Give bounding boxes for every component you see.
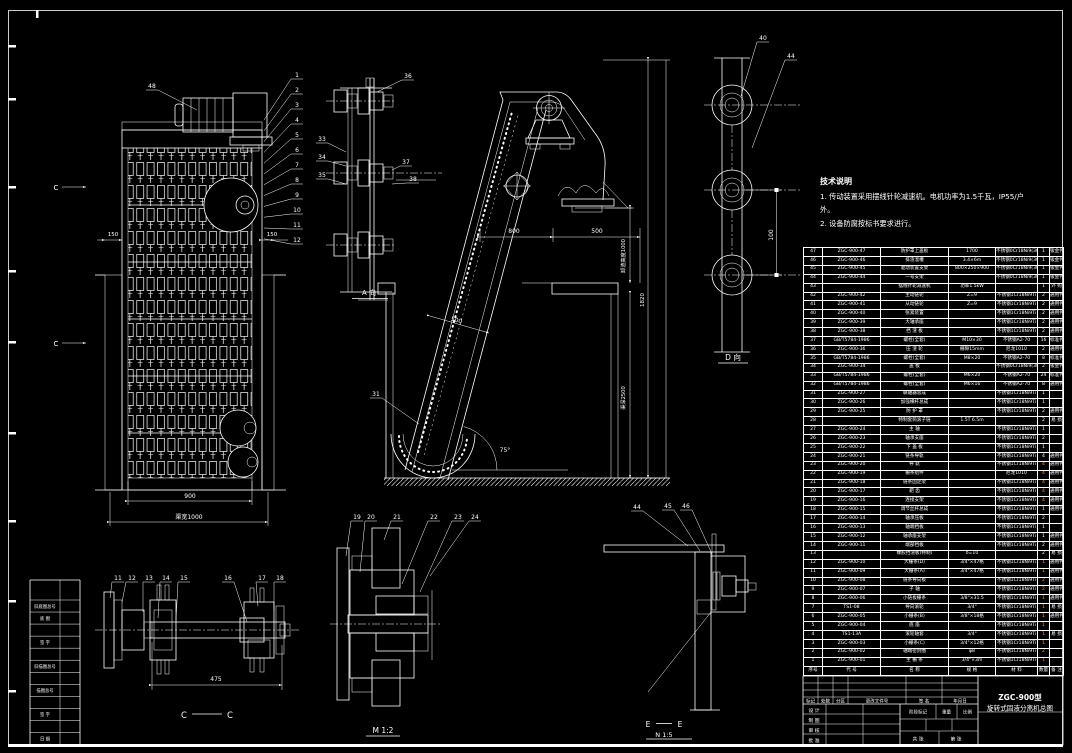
border-tick <box>8 186 16 189</box>
table-row: 44ZGC-900-44一号支架不锈钢0Cr18Ni9(304)1钣金件 <box>804 274 1064 283</box>
bom-cell: 不锈钢1Cr18Ni9Ti <box>996 479 1038 488</box>
table-row: 42ZGC-900-42主动链轮Z=9不锈钢1Cr18Ni9Ti2通用件 <box>804 292 1064 301</box>
balloon-leader <box>264 199 291 206</box>
bom-cell: 2 <box>804 648 823 657</box>
bom-cell: 大栅条(A) <box>881 568 949 577</box>
bom-cell: ZGC-900-41 <box>823 301 881 310</box>
bom-cell: 特制套筒滚子链 <box>881 417 949 426</box>
bom-cell: 联轴器总成 <box>881 390 949 399</box>
bom-cell: 滚轮轴套 <box>881 630 949 639</box>
bom-cell: 栅条组件 <box>881 470 949 479</box>
bom-cell: 8 <box>804 595 823 604</box>
left-strip-label: 旧描图总号 <box>34 663 55 670</box>
bom-cell: 41 <box>804 301 823 310</box>
bom-cell <box>949 524 996 533</box>
bom-cell: 螺栓(全套) <box>881 354 949 363</box>
table-row: 36ZGC-900-36压 渣 轮栅隙15mm尼龙10102通用件 <box>804 345 1064 354</box>
bom-cell: 17 <box>804 515 823 524</box>
bom-cell: 35 <box>804 354 823 363</box>
bom-cell: 子 轴 <box>881 586 949 595</box>
bom-cell: 标准件 <box>1050 337 1064 346</box>
balloon-number: 11 <box>114 575 122 582</box>
bom-cell: M6×20 <box>949 372 996 381</box>
balloon-number: 36 <box>404 73 412 80</box>
d-view: 100 D 向 <box>704 58 800 363</box>
bom-cell: 轴承座支架 <box>881 533 949 542</box>
bom-cell: δ=10 <box>949 550 996 559</box>
balloon-number: 20 <box>367 514 375 521</box>
table-row: 29ZGC-900-25防 护 罩不锈钢1Cr18Ni9Ti2通用件 <box>804 408 1064 417</box>
bom-cell: 钣金件 <box>1050 256 1064 265</box>
balloon-number: 10 <box>293 207 301 214</box>
section-marker-c-lower: C <box>54 340 59 348</box>
bom-cell: 不锈钢1Cr18Ni9Ti <box>996 586 1038 595</box>
left-strip-label: 描图总号 <box>36 687 53 694</box>
bom-cell: 19 <box>804 497 823 506</box>
roller-row-bottom <box>326 232 396 258</box>
bom-cell: 不锈钢1Cr18Ni9Ti <box>996 613 1038 622</box>
bom-cell: 不锈钢1Cr18Ni9Ti <box>996 577 1038 586</box>
bom-cell: 通用件 <box>1050 408 1064 417</box>
bom-cell <box>1050 390 1064 399</box>
bom-cell: 不锈钢1Cr18Ni9Ti <box>996 559 1038 568</box>
bom-cell: 1 <box>1038 639 1050 648</box>
bom-cell: 1 <box>1038 274 1050 283</box>
tb-sheet: 第 张 <box>950 736 961 743</box>
bom-cell: GB/T5784-1986 <box>823 381 881 390</box>
bom-cell: 主 栅 条 <box>881 657 949 666</box>
tech-notes: 技术说明 1. 传动装置采用摆线针轮减速机。电机功率为1.5千瓦，IP55/户 … <box>820 176 1024 228</box>
balloon-number: 40 <box>759 35 767 42</box>
bom-cell: 轴承压板 <box>881 515 949 524</box>
main-side-view: 800 500 500 75° 卸渣高度1000 渠深2500 1820 <box>378 60 670 486</box>
table-row: 46ZGC-900-46排渣溜槽3.4×6m不锈钢0Cr18Ni9(304)1钣… <box>804 256 1064 265</box>
bom-cell: ZGC-900-13 <box>823 524 881 533</box>
bom-header-cell: 数量 <box>1038 666 1050 675</box>
balloon-number: 9 <box>295 192 299 199</box>
bom-cell: ZGC-900-01 <box>823 657 881 666</box>
drawing-title: 旋转式固液分离机总图 <box>987 704 1053 713</box>
bom-cell: 底 座 <box>881 622 949 631</box>
bom-cell: 40 <box>804 310 823 319</box>
bom-cell: 排渣溜槽 <box>881 256 949 265</box>
bom-cell: ZGC-900-24 <box>823 426 881 435</box>
bom-cell: 通用件 <box>1050 301 1064 310</box>
tb-date: 年月日 <box>953 698 967 705</box>
bom-cell: 2 <box>1038 319 1050 328</box>
bom-cell: ZGC-900-25 <box>823 408 881 417</box>
dim-500-diagonal: 500 <box>450 316 463 326</box>
balloon-leader <box>752 60 785 148</box>
bom-cell: 2 <box>1038 345 1050 354</box>
bom-cell: 1 <box>1038 604 1050 613</box>
bom-header-cell: 规 格 <box>949 666 996 675</box>
bom-cell: 8 <box>1038 381 1050 390</box>
table-row: 45ZGC-900-45驱动装置支架800×250×900不锈钢0Cr18Ni9… <box>804 265 1064 274</box>
bom-cell: 1 <box>1038 443 1050 452</box>
bom-cell: ZGC-900-36 <box>823 345 881 354</box>
bom-cell <box>949 515 996 524</box>
bom-cell: 不锈钢0Cr18Ni9(304) <box>996 265 1038 274</box>
bom-header-cell: 材 料 <box>996 666 1038 675</box>
bom-cell: ZGC-900-06 <box>823 595 881 604</box>
table-row: 30ZGC-900-26加强横杆总成不锈钢1Cr18Ni9Ti1 <box>804 399 1064 408</box>
bom-cell: 4 <box>1038 497 1050 506</box>
bom-cell: 不锈钢1Cr18Ni9Ti <box>996 408 1038 417</box>
table-row: 7TS1-08导向滚轮3/4"不锈钢1Cr18Ni9Ti1易 损 <box>804 604 1064 613</box>
bom-cell: ZGC-900-23 <box>823 435 881 444</box>
table-row: 22ZGC-900-19栅条组件尼龙10104通用件 <box>804 470 1064 479</box>
table-row: 16ZGC-900-13轴端挡板不锈钢1Cr18Ni9Ti1 <box>804 524 1064 533</box>
bom-cell: 下 盖 板 <box>881 443 949 452</box>
bom-cell: 连接支架 <box>881 497 949 506</box>
bom-cell: 不锈钢1Cr18Ni9Ti <box>996 390 1038 399</box>
bom-cell: 从动链轮 <box>881 301 949 310</box>
bom-cell: TS1-08 <box>823 604 881 613</box>
bom-cell: 轴端密封圈 <box>881 648 949 657</box>
label-ee-right: E <box>678 720 683 729</box>
tech-notes-line3: 2. 设备防腐按标书要求进行。 <box>820 219 915 228</box>
border-tick <box>8 270 16 273</box>
table-row: 47ZGC-900-47防护罩上盖板1700不锈钢0Cr18Ni9(304)1钣… <box>804 248 1064 257</box>
bom-cell <box>949 577 996 586</box>
bom-cell: ZGC-900-05 <box>823 613 881 622</box>
bom-cell: 47 <box>804 248 823 257</box>
bom-cell <box>949 426 996 435</box>
bom-cell: 4 <box>1038 461 1050 470</box>
tb-stage: 阶段标记 <box>909 709 927 716</box>
bom-cell: 4 <box>1038 488 1050 497</box>
bom-cell: 主 轴 <box>881 426 949 435</box>
bom-header-cell: 代 号 <box>823 666 881 675</box>
table-row: 20ZGC-900-17耙 齿不锈钢1Cr18Ni9Ti4通用件 <box>804 488 1064 497</box>
bom-cell: 不锈钢1Cr18Ni9Ti <box>996 533 1038 542</box>
balloon-leader <box>264 139 291 163</box>
bom-cell: 不锈钢1Cr18Ni9Ti <box>996 328 1038 337</box>
cad-drawing-sheet: 150 150 900 渠宽1000 C C <box>0 0 1072 753</box>
left-edge-signature-strip: 旧底图总号底 图签 字旧描图总号描图总号签 字日 期 <box>30 580 80 745</box>
table-row: 32GB/T5784-1986螺栓(全套)M6×16不锈钢A2-708通用件 <box>804 381 1064 390</box>
bom-cell: 8 <box>1038 354 1050 363</box>
left-strip-label: 签 字 <box>40 639 50 646</box>
balloon-leader <box>643 511 688 546</box>
bom-cell: 1 <box>1038 399 1050 408</box>
bom-cell: 不锈钢1Cr18Ni9Ti <box>996 657 1038 666</box>
tb-approve: 批 准 <box>808 737 819 744</box>
bom-cell: 3/8"×18格 <box>949 613 996 622</box>
bom-cell: 不锈钢1Cr18Ni9Ti <box>996 443 1038 452</box>
table-row: 37GB/T5784-1986螺栓(全套)M10×30不锈钢A2-7016标准件 <box>804 337 1064 346</box>
bom-cell: 不锈钢1Cr18Ni9Ti <box>996 541 1038 550</box>
d-view-dimension: 100 <box>744 188 782 277</box>
bom-cell: 20 <box>804 488 823 497</box>
border-tick <box>8 432 16 435</box>
bom-cell: 不锈钢A2-70 <box>996 372 1038 381</box>
bom-cell: 小栅条(B) <box>881 613 949 622</box>
parts-table: 47ZGC-900-47防护罩上盖板1700不锈钢0Cr18Ni9(304)1钣… <box>803 247 1063 676</box>
bom-cell: 不锈钢1Cr18Ni9Ti <box>996 497 1038 506</box>
bom-cell: GB/T5784-1986 <box>823 372 881 381</box>
tech-notes-title: 技术说明 <box>820 176 852 186</box>
bom-cell: 易 损 <box>1050 550 1064 559</box>
bom-cell: ZGC-900-38 <box>823 328 881 337</box>
bom-cell: 22 <box>804 470 823 479</box>
balloon-number: 12 <box>293 237 301 244</box>
bom-cell <box>823 550 881 559</box>
table-row: 34ZGC-900-34盖 板不锈钢0Cr18Ni9(304)2钣金件 <box>804 363 1064 372</box>
balloon-leader <box>384 521 391 540</box>
bom-cell: 1 <box>1038 613 1050 622</box>
bom-cell: 通用件 <box>1050 470 1064 479</box>
border-tick <box>8 45 16 48</box>
balloon-number: 44 <box>633 504 641 511</box>
balloon-leader <box>360 521 365 572</box>
bom-cell: 通用件 <box>1050 461 1064 470</box>
bom-cell: 通用件 <box>1050 328 1064 337</box>
bom-cell: 不锈钢A2-70 <box>996 381 1038 390</box>
tech-notes-line2: 外。 <box>820 205 834 214</box>
balloon-number: 3 <box>295 102 299 109</box>
bom-cell <box>1050 622 1064 631</box>
bom-cell: 耙 齿 <box>881 488 949 497</box>
bom-cell: 导向滚轮 <box>881 604 949 613</box>
bom-cell: 1 <box>1038 248 1050 257</box>
bom-cell: 27 <box>804 426 823 435</box>
bom-cell: ZGC-900-14 <box>823 515 881 524</box>
bom-cell: 不锈钢0Cr18Ni9(304) <box>996 248 1038 257</box>
bom-cell: 不锈钢1Cr18Ni9Ti <box>996 426 1038 435</box>
bom-cell: 一号支架 <box>881 274 949 283</box>
bom-cell: 钣金件 <box>1050 248 1064 257</box>
tb-sign: 签 名 <box>919 698 929 705</box>
bom-cell: 2 <box>1038 408 1050 417</box>
bom-cell <box>949 541 996 550</box>
bom-cell: 通用件 <box>1050 533 1064 542</box>
bom-cell <box>949 408 996 417</box>
bom-cell: 不锈钢1Cr18Ni9Ti <box>996 568 1038 577</box>
a-view-chain-detail: A 向 <box>326 78 442 300</box>
table-row: 40ZGC-900-40张紧装置不锈钢1Cr18Ni9Ti2通用件 <box>804 310 1064 319</box>
balloon-number: 17 <box>258 575 266 582</box>
bom-cell: 链条导轨 <box>881 452 949 461</box>
bom-cell: ZGC-900-12 <box>823 533 881 542</box>
bom-cell: 13 <box>804 550 823 559</box>
bom-cell: 2 <box>1038 550 1050 559</box>
balloon-number: 35 <box>318 172 326 179</box>
border-tick <box>8 520 16 523</box>
bom-cell <box>1050 426 1064 435</box>
table-header-row: 序号代 号名 称规 格材 料数量备 注 <box>804 666 1064 675</box>
bom-cell <box>949 443 996 452</box>
bom-cell: 24 <box>804 452 823 461</box>
bom-cell: ZGC-900-03 <box>823 639 881 648</box>
table-row: 17ZGC-900-14轴承压板不锈钢1Cr18Ni9Ti2 <box>804 515 1064 524</box>
bom-cell: ZGC-900-27 <box>823 390 881 399</box>
bom-cell <box>949 399 996 408</box>
bom-cell: 9 <box>804 586 823 595</box>
roller-row-mid <box>326 160 442 186</box>
bom-cell: 不锈钢A2-70 <box>996 337 1038 346</box>
table-row: 23ZGC-900-20导 轨不锈钢1Cr18Ni9Ti4通用件 <box>804 461 1064 470</box>
drawing-model: ZGC-900型 <box>998 692 1042 702</box>
bom-cell: 不锈钢1Cr18Ni9Ti <box>996 595 1038 604</box>
table-row: 33GB/T5784-1986螺栓(全套)M6×20不锈钢A2-7024标准件 <box>804 372 1064 381</box>
balloon-leader <box>256 582 258 606</box>
bom-cell: 2 <box>1038 417 1050 426</box>
bom-cell <box>949 310 996 319</box>
label-m-detail: M 1:2 <box>373 726 394 735</box>
tb-weight: 重量 <box>942 709 951 716</box>
bom-cell: 2 <box>1038 577 1050 586</box>
bom-cell <box>949 319 996 328</box>
bom-cell: 37 <box>804 337 823 346</box>
table-row: 39ZGC-900-39大轴承座不锈钢1Cr18Ni9Ti2通用件 <box>804 319 1064 328</box>
bom-cell: 链条导向板 <box>881 577 949 586</box>
bom-cell: 3.4×6m <box>949 256 996 265</box>
balloon-leader <box>402 521 428 584</box>
bom-cell: 不锈钢1Cr18Ni9Ti <box>996 301 1038 310</box>
bom-cell: 链条固定架 <box>881 479 949 488</box>
dim-800: 800 <box>508 228 520 235</box>
bom-cell: φ8 <box>949 648 996 657</box>
dim-475: 475 <box>210 676 222 683</box>
bom-cell: 通用件 <box>1050 568 1064 577</box>
bom-cell: 通用件 <box>1050 577 1064 586</box>
bom-cell: 通用件 <box>1050 595 1064 604</box>
bom-cell: 4 <box>1038 452 1050 461</box>
bom-cell: ZGC-900-45 <box>823 265 881 274</box>
bom-cell: 28 <box>804 417 823 426</box>
left-strip-label: 旧底图总号 <box>34 603 55 610</box>
bom-cell: M10×30 <box>949 337 996 346</box>
drive-pulley <box>526 92 574 149</box>
balloon-leader <box>392 183 407 184</box>
left-strip-label: 签 字 <box>40 711 50 718</box>
bom-cell: 1 <box>1038 559 1050 568</box>
balloon-number: 4 <box>295 117 299 124</box>
balloon-number: 7 <box>295 162 299 169</box>
border-tick <box>8 341 16 344</box>
bom-cell: ZGC-900-17 <box>823 488 881 497</box>
balloon-leader <box>264 184 291 196</box>
bom-cell: 1 <box>1038 426 1050 435</box>
mid-sprocket <box>503 172 531 200</box>
bom-cell: ZGC-900-16 <box>823 497 881 506</box>
table-row: 12ZGC-900-10大栅条(D)3/4"×47格不锈钢1Cr18Ni9Ti1… <box>804 559 1064 568</box>
title-block: 标记 处数 分区 更改文件号 签 名 年月日 设 计 制 图 审 核 批 准 阶… <box>803 676 1063 745</box>
bom-cell <box>949 622 996 631</box>
balloon-number: 37 <box>402 159 410 166</box>
bom-cell: 不锈钢1Cr18Ni9Ti <box>996 452 1038 461</box>
bom-cell: ZGC-900-02 <box>823 648 881 657</box>
balloon-number: 21 <box>393 514 401 521</box>
bom-cell: 2 <box>1038 363 1050 372</box>
tb-sheets: 共 张 <box>912 736 923 743</box>
bom-cell <box>823 283 881 292</box>
bom-cell: 3/4" <box>949 630 996 639</box>
bom-cell: 32 <box>804 381 823 390</box>
bom-cell: ZGC-900-46 <box>823 256 881 265</box>
bom-cell: ZGC-900-34 <box>823 363 881 372</box>
bom-header-cell: 序号 <box>804 666 823 675</box>
table-row: 21ZGC-900-18链条固定架不锈钢1Cr18Ni9Ti4通用件 <box>804 479 1064 488</box>
bom-cell: 易 损 <box>1050 604 1064 613</box>
balloon-leader <box>420 521 452 592</box>
table-row: 27ZGC-900-24主 轴不锈钢1Cr18Ni9Ti1 <box>804 426 1064 435</box>
balloon-leader <box>328 179 346 184</box>
dim-channel-depth: 渠深2500 <box>619 386 627 410</box>
dim-angle-75: 75° <box>500 447 511 454</box>
bom-cell: 张紧装置 <box>881 310 949 319</box>
bom-cell: 1 <box>1038 657 1050 666</box>
e-detail-view: E E N 1:5 <box>604 534 756 739</box>
bom-cell: 挡 渣 板 <box>881 328 949 337</box>
bom-cell: Z=9 <box>949 292 996 301</box>
bom-cell: 小栅条(C) <box>881 639 949 648</box>
bom-cell: 4 <box>1038 470 1050 479</box>
dim-discharge-height: 卸渣高度1000 <box>619 239 627 273</box>
bom-cell: 不锈钢1Cr18Ni9Ti <box>996 506 1038 515</box>
balloon-leader <box>264 214 291 217</box>
bom-cell: GB/T5784-1986 <box>823 337 881 346</box>
bom-cell: 螺栓(全套) <box>881 381 949 390</box>
balloon-number: 12 <box>128 575 136 582</box>
tb-doc: 更改文件号 <box>866 698 889 705</box>
bom-cell: 1.5T 6.5m <box>949 417 996 426</box>
bom-cell: 10 <box>804 577 823 586</box>
bom-cell <box>949 435 996 444</box>
bom-cell: 1 <box>804 657 823 666</box>
bom-cell: 轴承支座 <box>881 435 949 444</box>
bom-cell: 通用件 <box>1050 479 1064 488</box>
bom-cell: 4 <box>1038 479 1050 488</box>
balloon-number: 45 <box>664 503 672 510</box>
tech-notes-line1: 1. 传动装置采用摆线针轮减速机。电机功率为1.5千瓦，IP55/户 <box>820 192 1024 201</box>
table-row: 2ZGC-900-02轴端密封圈φ8不锈钢1Cr18Ni9Ti2 <box>804 648 1064 657</box>
bom-cell: 43 <box>804 283 823 292</box>
bom-cell: 功率1.5kW <box>949 283 996 292</box>
bom-cell: 加强横杆总成 <box>881 399 949 408</box>
bom-cell: ZGC-900-19 <box>823 470 881 479</box>
bom-cell: 3/4"×47格 <box>949 568 996 577</box>
bom-cell: 不锈钢1Cr18Ni9Ti <box>996 604 1038 613</box>
bom-cell: 1 <box>1038 533 1050 542</box>
bom-cell: 外 购 <box>1050 283 1064 292</box>
bom-cell: 端部挡板 <box>881 541 949 550</box>
balloon-leader <box>430 521 469 576</box>
bom-cell: 不锈钢1Cr18Ni9Ti <box>996 524 1038 533</box>
balloon-leader <box>382 398 419 424</box>
bom-cell: 16 <box>804 524 823 533</box>
balloon-leader <box>377 80 402 92</box>
bom-cell: 尼龙1010 <box>996 345 1038 354</box>
bom-cell <box>949 452 996 461</box>
balloon-number: 33 <box>318 136 326 143</box>
bom-cell <box>949 479 996 488</box>
bom-cell: M8×20 <box>949 354 996 363</box>
balloon-number: 13 <box>145 575 153 582</box>
bom-cell: 2 <box>1038 328 1050 337</box>
bom-cell: 橡胶挡渣板(特制) <box>881 550 949 559</box>
bom-cell: 1 <box>1038 630 1050 639</box>
bom-table: 47ZGC-900-47防护罩上盖板1700不锈钢0Cr18Ni9(304)1钣… <box>803 247 1064 676</box>
balloon-leader <box>122 582 126 602</box>
balloon-leader <box>110 582 112 598</box>
cc-section-view: 475 C C <box>95 585 300 721</box>
left-strip-label: 日 期 <box>40 736 50 742</box>
label-cc-right: C <box>227 711 233 721</box>
bom-cell: 不锈钢1Cr18Ni9Ti <box>996 292 1038 301</box>
